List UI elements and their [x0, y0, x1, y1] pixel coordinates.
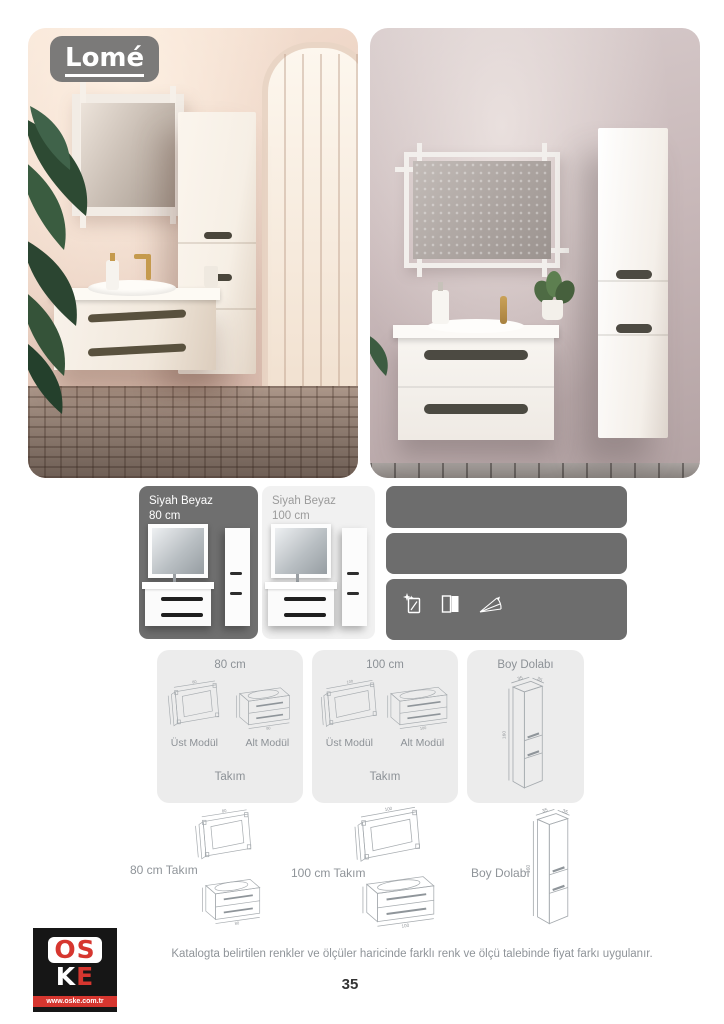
module-labels: Üst Modül Alt Modül — [157, 737, 303, 749]
top-module-label: Üst Modül — [171, 737, 218, 749]
drawer-handle-slot — [424, 404, 528, 414]
mini-furniture-render — [262, 516, 375, 633]
bottom-module-label: Alt Modül — [400, 737, 444, 749]
variant-label: Siyah Beyaz 80 cm — [149, 494, 213, 524]
svg-text:80: 80 — [266, 726, 271, 731]
mini-vanity — [268, 582, 334, 626]
vanity-unit — [398, 334, 554, 440]
plant-pot — [542, 300, 563, 320]
cabinet-door-icon — [440, 593, 461, 615]
set-80-label: 80 cm Takım — [130, 863, 198, 877]
mirror-glass — [413, 161, 551, 259]
spec-card-80cm: 80 cm 80 80 Üst Modül Alt Modül Takım — [157, 650, 303, 803]
set-100-label: 100 cm Takım — [291, 866, 365, 880]
mirror-technical-drawing: 100 — [352, 805, 430, 865]
door-seam — [598, 334, 668, 336]
handle-slot — [616, 270, 652, 279]
mini-vanity — [145, 582, 211, 626]
svg-text:100: 100 — [401, 923, 410, 929]
gold-faucet — [500, 296, 507, 324]
vanity-technical-drawing: 100 — [382, 677, 452, 733]
arched-window — [262, 42, 358, 408]
variant-card-100cm: Siyah Beyaz 100 cm — [262, 486, 375, 639]
disclaimer-text: Katalogta belirtilen renkler ve ölçüler … — [128, 948, 696, 960]
svg-text:80: 80 — [221, 808, 227, 814]
handle-slot — [161, 613, 203, 617]
framed-mirror — [404, 152, 560, 268]
door-seam — [178, 242, 256, 244]
svg-text:35: 35 — [541, 807, 548, 814]
variant-color-name: Siyah Beyaz — [149, 494, 213, 509]
mini-mirror — [271, 524, 331, 578]
tall-cabinet-label: Boy Dolabı — [471, 866, 530, 880]
handle-slot — [347, 592, 359, 595]
set-label: Takım — [312, 771, 458, 783]
mini-tall-cabinet — [342, 528, 367, 626]
logo-os-text: OS — [48, 937, 102, 963]
mirror-sparkle-icon — [402, 592, 424, 616]
leaf — [370, 328, 392, 378]
svg-text:160: 160 — [501, 731, 507, 739]
variant-size: 100 cm — [272, 509, 336, 524]
svg-text:80: 80 — [234, 920, 240, 926]
mini-tall-cabinet — [225, 528, 250, 626]
spec-card-tall-cabinet: Boy Dolabı 160 35 35 — [467, 650, 584, 803]
top-module-label: Üst Modül — [326, 737, 373, 749]
spec-card-title: Boy Dolabı — [467, 659, 584, 671]
product-title-badge: Lomé — [50, 36, 159, 82]
info-box-2 — [386, 533, 627, 574]
info-box-features — [386, 579, 627, 640]
svg-text:160: 160 — [526, 865, 532, 874]
soap-bottle — [106, 260, 119, 290]
feature-icon-row — [402, 592, 503, 616]
product-photo-80cm-scene — [28, 28, 358, 478]
handle-slot — [284, 613, 326, 617]
spec-card-100cm: 100 cm 100 100 Üst Modül Alt Modül Takım — [312, 650, 458, 803]
mirror-technical-drawing: 80 — [165, 675, 229, 733]
variant-label: Siyah Beyaz 100 cm — [272, 494, 336, 524]
handle-slot — [616, 324, 652, 333]
handle-slot — [347, 572, 359, 575]
mirror-technical-drawing: 80 — [192, 805, 262, 865]
drawer-seam — [398, 386, 554, 388]
svg-text:100: 100 — [384, 806, 393, 812]
variant-card-80cm: Siyah Beyaz 80 cm — [139, 486, 258, 639]
svg-text:35: 35 — [516, 675, 523, 682]
page-number: 35 — [0, 976, 700, 993]
mirror-technical-drawing: 100 — [320, 675, 384, 733]
plant-leaves — [28, 88, 150, 418]
mini-mirror — [148, 524, 208, 578]
svg-text:80: 80 — [192, 680, 197, 685]
handle-slot — [284, 597, 326, 601]
vanity-technical-drawing: 80 — [192, 866, 268, 930]
set-label: Takım — [157, 771, 303, 783]
product-photo-100cm-scene — [370, 28, 700, 478]
door-seam — [598, 280, 668, 282]
variant-color-name: Siyah Beyaz — [272, 494, 336, 509]
vanity-technical-drawing: 100 — [356, 866, 440, 930]
tall-cabinet-technical-drawing: 160 35 35 — [522, 806, 580, 932]
tall-cabinet-technical-drawing: 160 35 35 — [499, 674, 553, 796]
mini-furniture-render — [139, 516, 258, 633]
vanity-technical-drawing: 80 — [227, 677, 297, 733]
handle-slot — [230, 592, 242, 595]
handle-slot — [230, 572, 242, 575]
logo-website: www.oske.com.tr — [33, 996, 117, 1007]
drawer-handle-slot — [424, 350, 528, 360]
tall-cabinet — [598, 128, 668, 438]
spec-card-title: 80 cm — [157, 659, 303, 671]
oske-logo: OS KE www.oske.com.tr — [33, 928, 117, 1012]
gold-faucet — [146, 254, 151, 280]
soap-bottle — [432, 290, 449, 324]
module-labels: Üst Modül Alt Modül — [312, 737, 458, 749]
bottom-module-label: Alt Modül — [245, 737, 289, 749]
handle-slot — [204, 232, 232, 239]
product-title: Lomé — [65, 43, 144, 77]
flower-vase — [204, 266, 218, 288]
spec-card-title: 100 cm — [312, 659, 458, 671]
variant-size: 80 cm — [149, 509, 213, 524]
soft-close-icon — [477, 594, 503, 615]
handle-slot — [161, 597, 203, 601]
svg-text:100: 100 — [420, 726, 427, 731]
stone-floor — [370, 463, 700, 478]
info-box-1 — [386, 486, 627, 528]
